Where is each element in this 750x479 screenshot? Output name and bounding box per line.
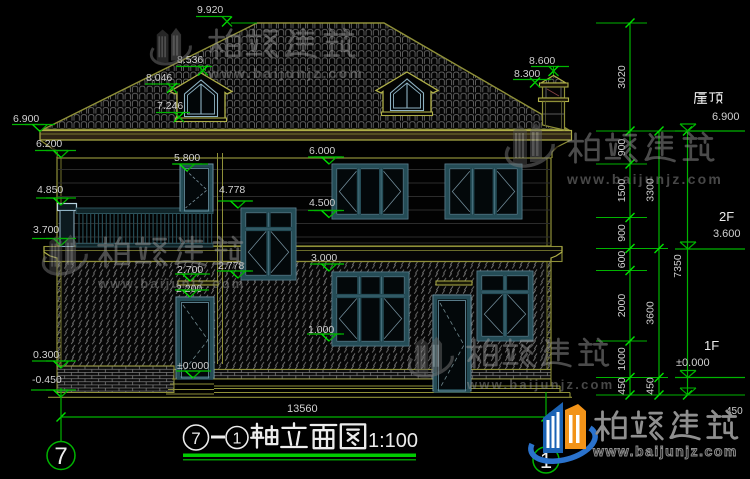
svg-text:9.920: 9.920 [197, 4, 223, 16]
svg-text:4.778: 4.778 [219, 184, 245, 196]
svg-text:0.300: 0.300 [33, 349, 59, 361]
svg-text:www.baijunjz.com: www.baijunjz.com [207, 65, 364, 81]
svg-text:8.300: 8.300 [514, 68, 540, 80]
svg-text:3.600: 3.600 [713, 228, 741, 240]
svg-text:13560: 13560 [287, 403, 318, 415]
svg-text:7.246: 7.246 [157, 100, 183, 112]
svg-text:7: 7 [54, 443, 67, 470]
svg-text:5.800: 5.800 [174, 152, 200, 164]
svg-text:6.900: 6.900 [712, 111, 740, 123]
svg-text:450: 450 [616, 377, 628, 395]
svg-text:4.500: 4.500 [309, 197, 335, 209]
svg-text:6.200: 6.200 [36, 138, 62, 150]
svg-text:±0.000: ±0.000 [177, 360, 209, 372]
svg-text:-0.450: -0.450 [32, 374, 62, 386]
svg-text:1: 1 [233, 431, 242, 448]
svg-text:1000: 1000 [616, 347, 628, 371]
svg-text:3.700: 3.700 [33, 224, 59, 236]
svg-text:1F: 1F [704, 338, 719, 353]
svg-text:2F: 2F [719, 209, 734, 224]
svg-text:6.000: 6.000 [309, 145, 335, 157]
svg-text:3600: 3600 [645, 301, 657, 325]
svg-text:2000: 2000 [616, 294, 628, 318]
svg-text:6.900: 6.900 [13, 113, 39, 125]
svg-text:3020: 3020 [616, 65, 628, 89]
svg-text:450: 450 [645, 377, 657, 395]
svg-text:www.baijunjz.com: www.baijunjz.com [566, 171, 723, 187]
svg-text:8.600: 8.600 [529, 55, 555, 67]
svg-text:±0.000: ±0.000 [676, 357, 710, 369]
svg-text:www.baijunjz.com: www.baijunjz.com [97, 276, 245, 291]
svg-text:8.046: 8.046 [146, 72, 172, 84]
svg-text:1:100: 1:100 [368, 430, 418, 452]
svg-text:900: 900 [616, 224, 628, 242]
svg-text:3.000: 3.000 [311, 252, 337, 264]
svg-text:4.850: 4.850 [37, 184, 63, 196]
svg-text:7350: 7350 [672, 254, 684, 278]
svg-text:www.baijunjz.com: www.baijunjz.com [592, 443, 738, 459]
svg-text:600: 600 [616, 251, 628, 269]
svg-text:7: 7 [191, 429, 200, 448]
svg-text:www.baijunjz.com: www.baijunjz.com [466, 377, 614, 392]
